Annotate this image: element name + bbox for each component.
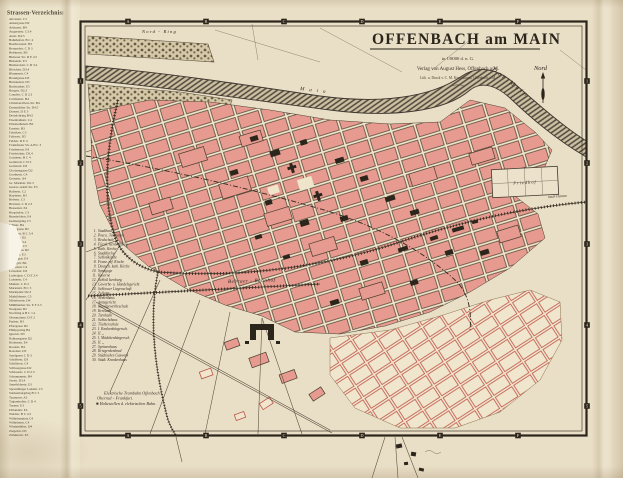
grid-letter: C: [281, 433, 287, 439]
north-label: Nord: [533, 65, 548, 72]
building-legend: 1. Stadthaus 2. Post u. Telegraph 3. Rea…: [90, 229, 180, 363]
svg-text:A: A: [126, 433, 129, 438]
grid-letter: F: [515, 19, 521, 25]
svg-text:C: C: [283, 19, 286, 24]
grid-letter: B: [203, 433, 209, 439]
grid-letter: D: [359, 19, 365, 25]
svg-text:D: D: [360, 433, 363, 438]
svg-text:C: C: [283, 433, 286, 438]
map-title: OFFENBACH am MAIN: [372, 31, 561, 48]
legend-item-number: 30.: [90, 358, 97, 362]
svg-text:1: 1: [586, 79, 588, 84]
svg-text:5: 5: [586, 404, 588, 409]
grid-letter: F: [515, 433, 521, 439]
svg-text:2: 2: [586, 161, 588, 166]
grid-letter: A: [125, 433, 131, 439]
legend-item: 30. Städt. Krankenhaus: [90, 358, 180, 362]
street-index: Strassen-Verzeichnis: Alicenstr. C3Anker…: [4, 10, 80, 438]
svg-text:A: A: [126, 19, 129, 24]
grid-number: 1: [584, 78, 590, 84]
grid-letter: A: [125, 19, 131, 25]
svg-text:B: B: [205, 433, 208, 438]
svg-text:B: B: [205, 19, 208, 24]
terminal-annex: [245, 341, 249, 344]
svg-text:3: 3: [586, 242, 588, 247]
grid-letter: C: [281, 19, 287, 25]
legend-item-label: Städt. Krankenhaus: [98, 358, 127, 362]
map-sheet: Friedhof: [0, 0, 623, 478]
grid-number: 4: [584, 322, 590, 328]
cemetery: Friedhof: [491, 166, 558, 197]
grid-letter: B: [203, 19, 209, 25]
tram-note: Elektrische Trambahn Offenbach –Oberrad …: [96, 391, 206, 407]
svg-text:E: E: [439, 433, 442, 438]
grid-number: 5: [584, 403, 590, 409]
terminal-annex: [276, 341, 280, 344]
nord-ring-label: Nord - Ring: [141, 29, 177, 34]
scale-note: in 1/8000 d. n. G.: [442, 56, 474, 61]
street-index-entry: Zimmerstr. E3: [9, 434, 80, 438]
grid-number: 3: [584, 241, 590, 247]
grid-letter: E: [437, 433, 443, 439]
grid-number: 2: [584, 160, 590, 166]
grid-letter: D: [359, 433, 365, 439]
svg-text:E: E: [439, 19, 442, 24]
grid-letter: E: [437, 19, 443, 25]
tram-note-line: ■ Haltestellen d. elektrischen Bahn.: [96, 401, 206, 406]
street-index-heading: Strassen-Verzeichnis:: [7, 10, 80, 16]
svg-text:D: D: [360, 19, 363, 24]
publisher-line: Verlag von August Hess, Offenbach a/M.: [417, 67, 499, 72]
